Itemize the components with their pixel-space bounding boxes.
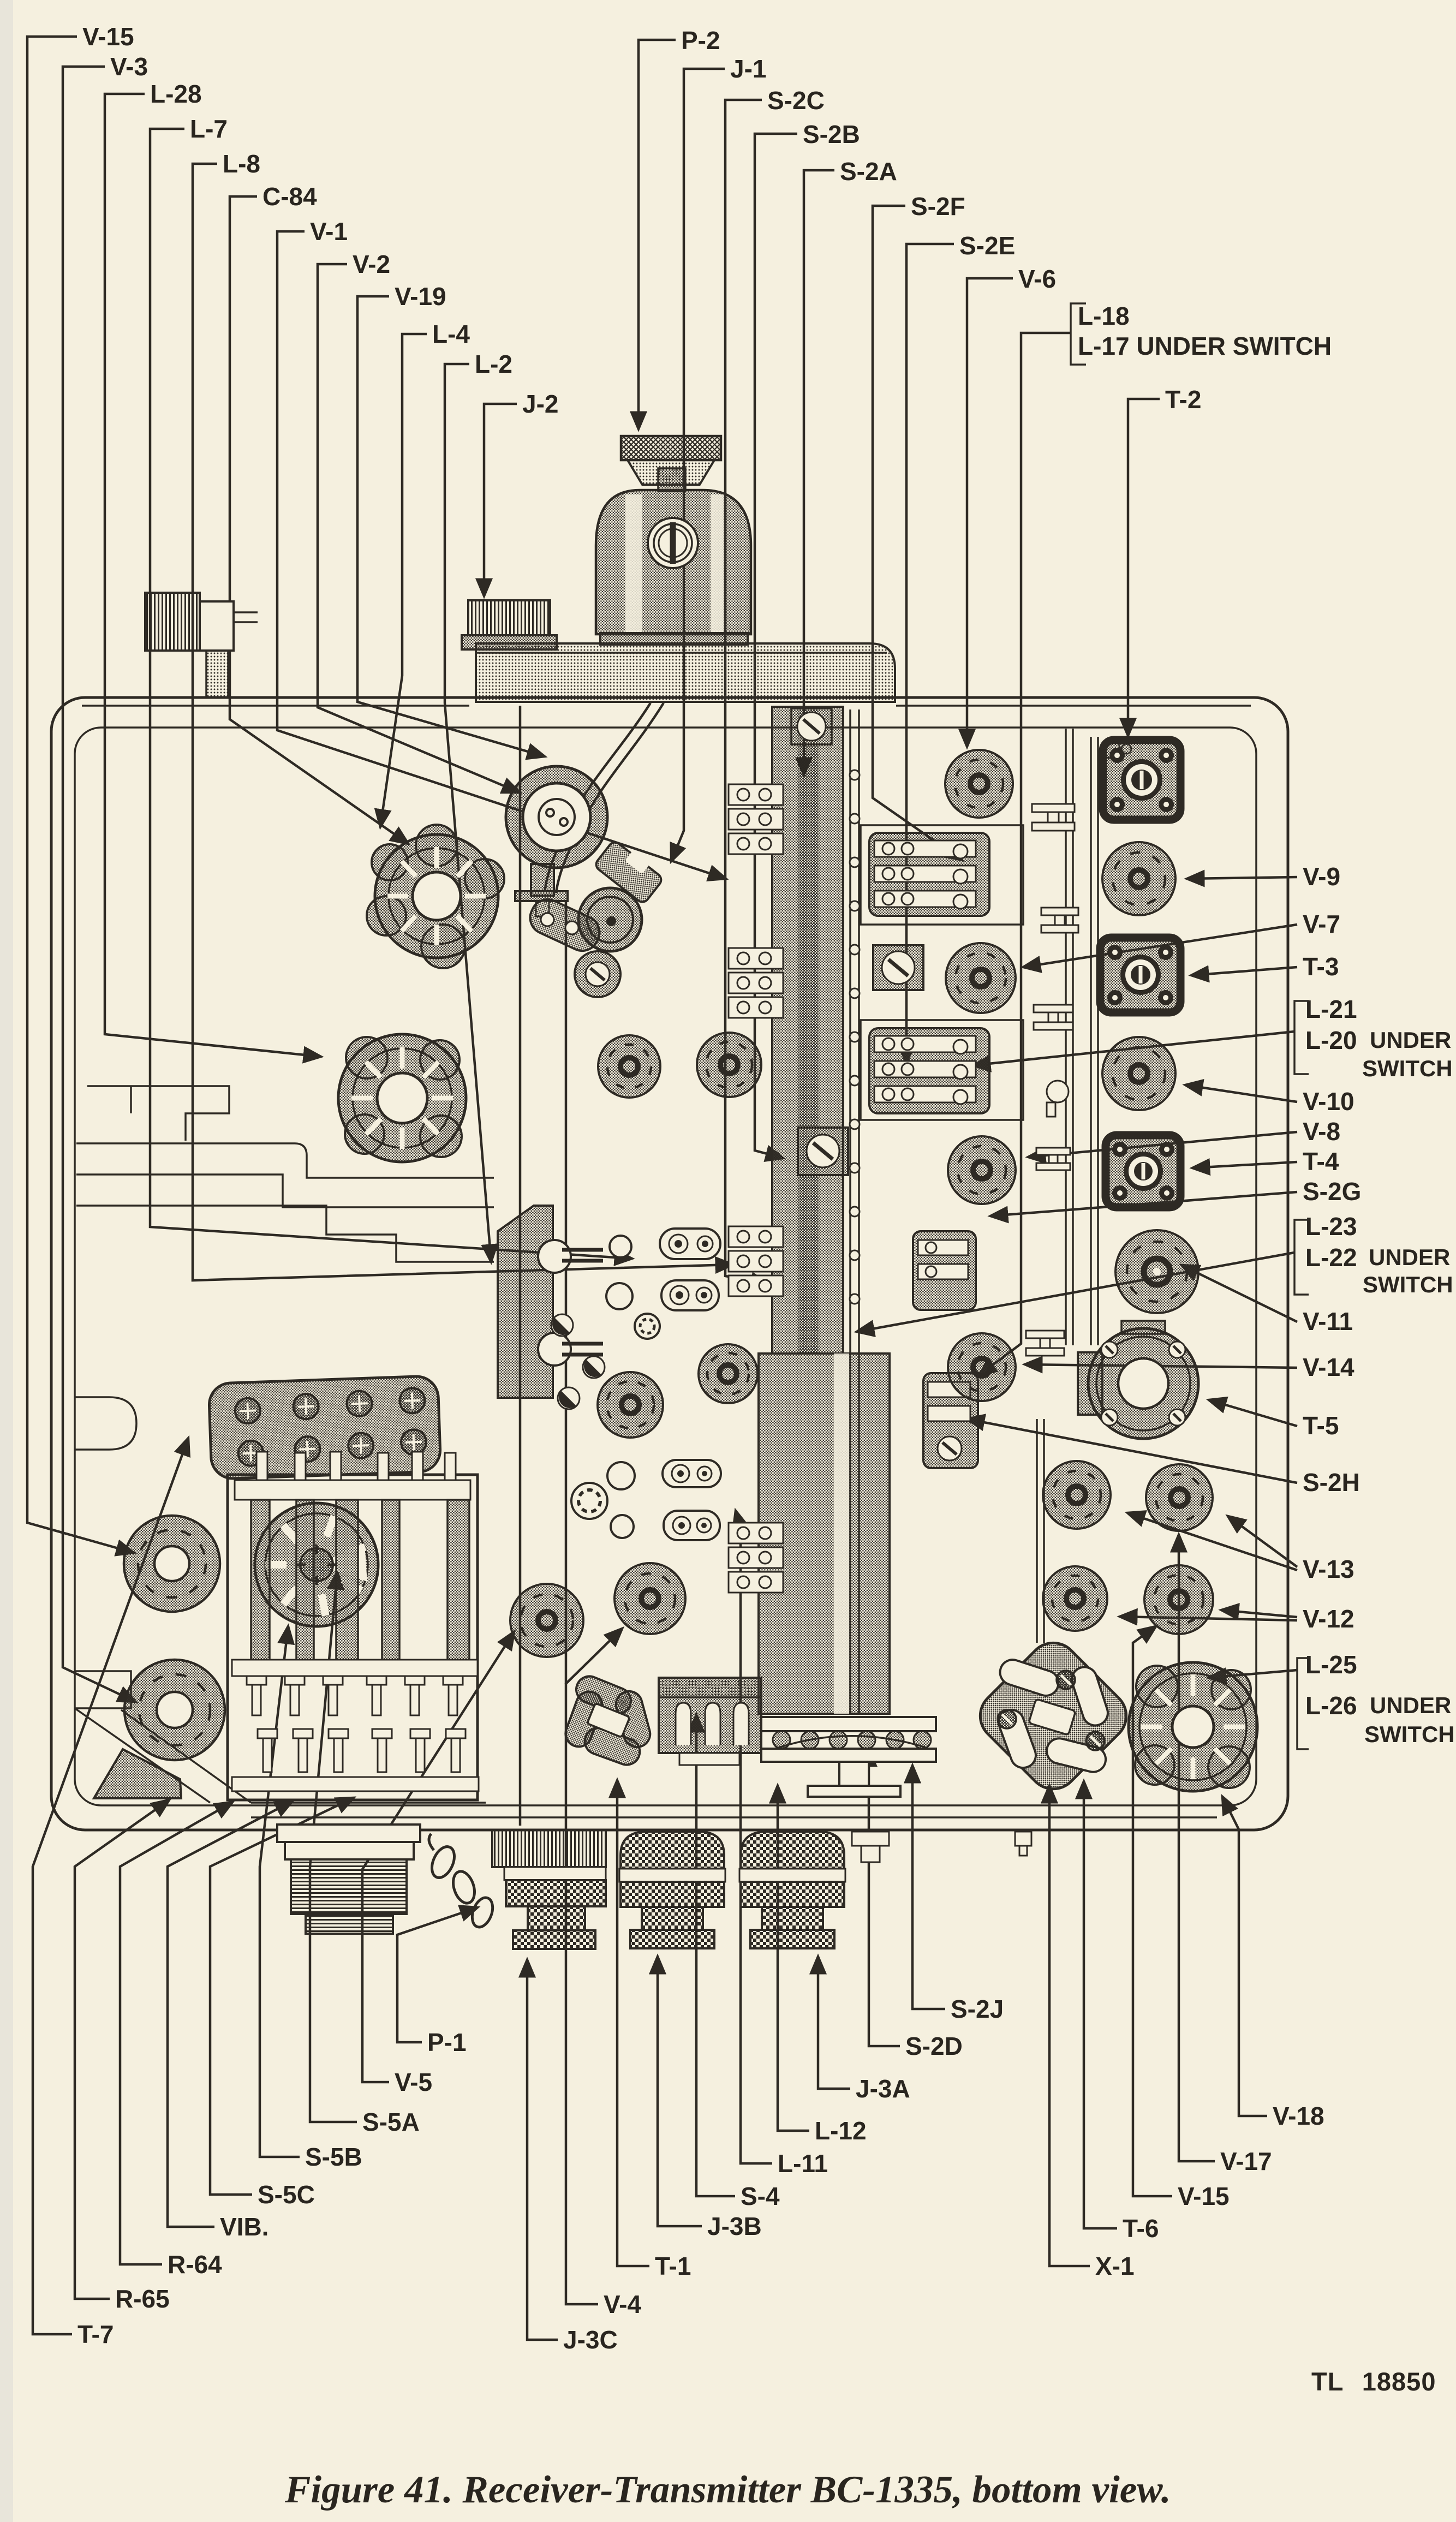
svg-text:L-25: L-25	[1305, 1650, 1357, 1679]
svg-text:L-20: L-20	[1305, 1026, 1357, 1054]
svg-text:S-5A: S-5A	[362, 2108, 420, 2136]
svg-text:S-2J: S-2J	[951, 1995, 1004, 2023]
svg-text:V-9: V-9	[1303, 862, 1340, 891]
svg-text:L-18: L-18	[1078, 302, 1130, 330]
svg-text:VIB.: VIB.	[220, 2213, 268, 2241]
svg-text:L-8: L-8	[223, 150, 260, 178]
svg-text:T-1: T-1	[655, 2252, 691, 2280]
svg-text:T-3: T-3	[1303, 952, 1339, 981]
svg-text:V-3: V-3	[110, 52, 148, 81]
svg-text:S-5C: S-5C	[258, 2180, 315, 2209]
svg-text:L-2: L-2	[475, 350, 512, 378]
svg-text:V-4: V-4	[604, 2290, 641, 2318]
svg-text:L-7: L-7	[190, 115, 228, 143]
svg-text:L-4: L-4	[432, 320, 470, 348]
svg-text:S-2D: S-2D	[905, 2032, 963, 2060]
svg-text:V-19: V-19	[395, 282, 446, 311]
svg-text:J-3C: J-3C	[563, 2326, 618, 2354]
svg-text:L-12: L-12	[815, 2116, 867, 2145]
svg-text:T-4: T-4	[1303, 1147, 1339, 1176]
svg-text:V-15: V-15	[1178, 2182, 1230, 2210]
svg-text:V-14: V-14	[1303, 1353, 1354, 1381]
svg-text:P-2: P-2	[681, 26, 720, 55]
svg-text:V-15: V-15	[82, 22, 134, 51]
svg-text:S-2H: S-2H	[1303, 1468, 1360, 1496]
svg-text:X-1: X-1	[1095, 2252, 1135, 2280]
svg-text:J-3A: J-3A	[856, 2074, 910, 2103]
svg-text:V-12: V-12	[1303, 1605, 1354, 1633]
svg-text:V-1: V-1	[310, 217, 348, 246]
svg-text:SWITCH: SWITCH	[1363, 1272, 1453, 1297]
svg-text:S-2F: S-2F	[911, 192, 965, 220]
svg-text:T-2: T-2	[1165, 385, 1201, 414]
svg-text:J-1: J-1	[730, 55, 766, 83]
svg-text:V-18: V-18	[1273, 2102, 1324, 2130]
svg-text:L-23: L-23	[1305, 1212, 1357, 1241]
svg-text:S-2G: S-2G	[1303, 1177, 1361, 1206]
svg-text:TL 18850: TL 18850	[1311, 2367, 1436, 2396]
svg-text:UNDER: UNDER	[1370, 1027, 1451, 1053]
svg-text:SWITCH: SWITCH	[1364, 1721, 1455, 1747]
svg-text:J-2: J-2	[522, 390, 558, 418]
svg-text:S-2C: S-2C	[767, 86, 825, 115]
svg-text:SWITCH: SWITCH	[1362, 1056, 1453, 1081]
svg-text:S-2A: S-2A	[840, 157, 897, 186]
svg-text:V-2: V-2	[353, 250, 390, 278]
svg-text:V-11: V-11	[1303, 1307, 1353, 1335]
svg-text:L-28: L-28	[150, 80, 202, 108]
svg-text:L-26: L-26	[1305, 1691, 1357, 1720]
svg-text:L-21: L-21	[1305, 995, 1357, 1023]
svg-text:T-6: T-6	[1123, 2214, 1159, 2243]
svg-text:C-84: C-84	[262, 182, 317, 211]
svg-text:V-8: V-8	[1303, 1117, 1340, 1146]
svg-text:S-5B: S-5B	[305, 2143, 362, 2171]
svg-text:V-10: V-10	[1303, 1087, 1354, 1116]
svg-text:R-65: R-65	[115, 2285, 170, 2313]
svg-text:S-4: S-4	[741, 2182, 780, 2210]
svg-text:V-17: V-17	[1220, 2147, 1272, 2175]
svg-text:L-11: L-11	[778, 2149, 828, 2178]
svg-text:UNDER: UNDER	[1369, 1244, 1450, 1270]
svg-text:UNDER: UNDER	[1370, 1692, 1451, 1718]
svg-text:Figure 41. Receiver-Transmitt: Figure 41. Receiver-Transmitter BC-1335,…	[284, 2469, 1171, 2511]
svg-text:V-7: V-7	[1303, 910, 1340, 938]
svg-text:J-3B: J-3B	[707, 2212, 762, 2240]
svg-text:L-17 UNDER SWITCH: L-17 UNDER SWITCH	[1078, 332, 1332, 360]
svg-text:V-5: V-5	[395, 2068, 432, 2096]
svg-text:T-7: T-7	[77, 2320, 114, 2348]
svg-text:S-2E: S-2E	[959, 231, 1015, 260]
svg-text:S-2B: S-2B	[803, 120, 860, 148]
svg-text:V-6: V-6	[1018, 265, 1056, 293]
svg-text:P-1: P-1	[427, 2028, 467, 2056]
svg-text:R-64: R-64	[168, 2250, 222, 2279]
svg-text:T-5: T-5	[1303, 1411, 1339, 1440]
svg-text:V-13: V-13	[1303, 1555, 1354, 1583]
svg-text:L-22: L-22	[1305, 1243, 1357, 1272]
